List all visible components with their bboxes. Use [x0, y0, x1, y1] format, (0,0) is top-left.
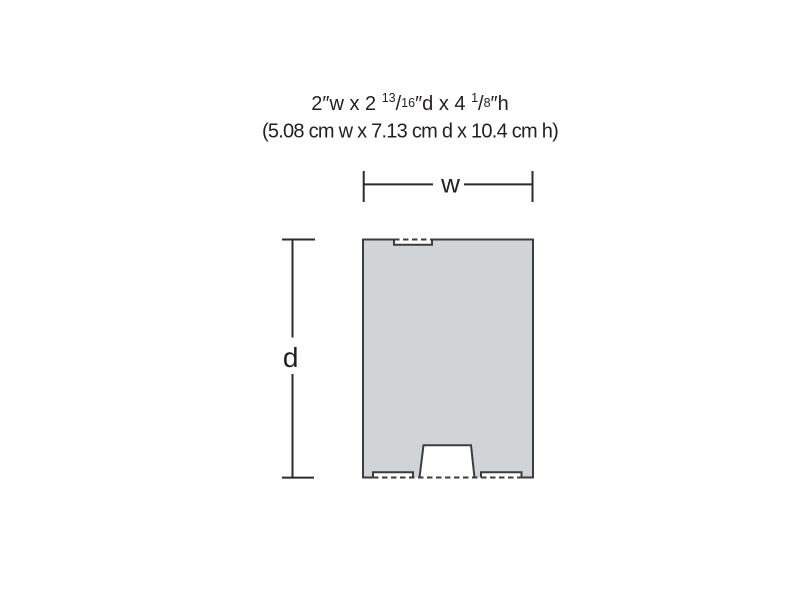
svg-text:(5.08 cm w x 7.13 cm d x 10.4: (5.08 cm w x 7.13 cm d x 10.4 cm h)	[262, 121, 558, 143]
svg-text:d: d	[283, 342, 299, 373]
svg-text:w: w	[440, 169, 460, 199]
svg-text:2″w x 2 13/16″d x 4 1/8″h: 2″w x 2 13/16″d x 4 1/8″h	[311, 91, 509, 115]
